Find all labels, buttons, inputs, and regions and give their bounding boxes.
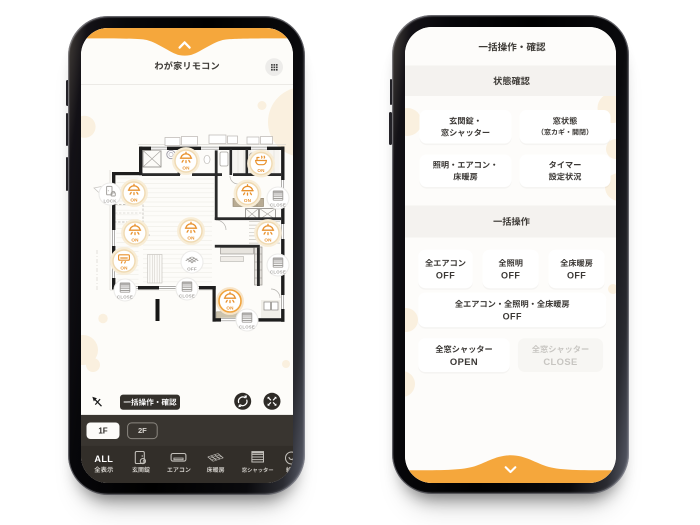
svg-text:ON: ON	[187, 235, 195, 240]
svg-text:OFF: OFF	[502, 311, 521, 321]
svg-text:LOCK: LOCK	[103, 198, 117, 203]
svg-text:OFF: OFF	[435, 270, 454, 280]
svg-text:OFF: OFF	[501, 270, 520, 280]
svg-text:2F: 2F	[138, 426, 147, 435]
svg-text:OFF: OFF	[566, 270, 585, 280]
svg-text:ON: ON	[182, 165, 190, 170]
svg-text:ON: ON	[264, 237, 272, 242]
svg-text:1F: 1F	[98, 426, 107, 435]
svg-text:CLOSE: CLOSE	[543, 356, 577, 367]
svg-text:CLOSE: CLOSE	[239, 324, 255, 329]
svg-text:ON: ON	[226, 305, 234, 310]
svg-text:ON: ON	[130, 197, 138, 202]
svg-text:OPEN: OPEN	[449, 356, 477, 367]
svg-text:ON: ON	[244, 198, 252, 203]
svg-text:CLOSE: CLOSE	[117, 294, 133, 299]
svg-text:CLOSE: CLOSE	[270, 269, 286, 274]
svg-text:CLOSE: CLOSE	[270, 202, 286, 207]
svg-text:ON: ON	[131, 237, 139, 242]
svg-text:CLOSE: CLOSE	[179, 293, 195, 298]
svg-text:ALL: ALL	[94, 454, 113, 464]
svg-text:OFF: OFF	[187, 266, 197, 271]
svg-text:ON: ON	[120, 265, 128, 270]
svg-text:ON: ON	[257, 168, 265, 173]
